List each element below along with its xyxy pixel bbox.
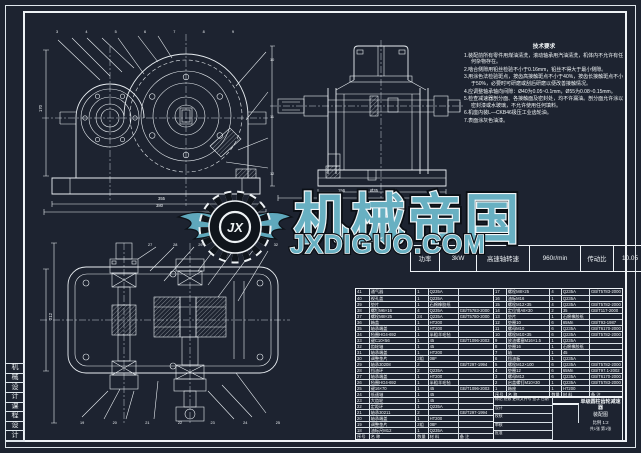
balloon-number: 7 — [173, 30, 175, 34]
balloon-number: 9 — [232, 30, 234, 34]
parts-list-table-left: 41通气器1Q235A40视孔盖1Q235A39垫片1石棉橡胶纸38螺钉M6×1… — [355, 288, 494, 440]
parts-list-table-right: 17螺栓M8×254Q235AGB/T5783-200016油标M161Q235… — [493, 288, 623, 398]
balloon-number: 5 — [115, 30, 117, 34]
signature-row: 标记 处数 更改文件号 签字 日期 — [494, 397, 552, 406]
winged-gear-logo-icon: JX — [176, 183, 294, 271]
balloon-number: 12 — [270, 172, 274, 176]
technical-note-line: 2.啮合侧隙用铅丝检验不小于0.16mm，铅丝不得大于最小侧隙。 — [464, 67, 624, 74]
balloon-number: 10 — [270, 58, 274, 62]
side-strip-char: 设 — [6, 383, 24, 393]
balloon-callouts-top-bottom: 19202122232425 — [80, 421, 280, 425]
dimension-label: 170 — [38, 105, 43, 112]
dimension-label: 355 — [158, 196, 165, 201]
dimension-label: 380 — [156, 203, 163, 208]
balloon-number: 23 — [211, 421, 215, 425]
binding-edge-label: 机械设计课程设计 — [5, 363, 25, 442]
technical-note-line: 7.表面涂灰色油漆。 — [464, 118, 624, 125]
balloon-number: 4 — [85, 30, 87, 34]
signature-row: 批准 — [494, 431, 552, 440]
balloon-number: 24 — [243, 421, 247, 425]
technical-notes-title: 技术要求 — [464, 44, 624, 51]
title-block-signature-rows: 标记 处数 更改文件号 签字 日期设计校核审核批准 — [494, 397, 553, 440]
technical-note-line: 1.装配前所有零件用煤油清洗，滚动轴承用汽油清洗，机体内不允许有任何杂物存在。 — [464, 53, 624, 66]
balloon-number: 27 — [148, 243, 152, 247]
parameter-cell: 10.05 — [614, 246, 641, 271]
balloon-number: 8 — [203, 30, 205, 34]
parameter-cell: 传动比 — [581, 246, 614, 271]
dimension-label: 212 — [48, 313, 53, 320]
technical-note-line: 5.检查减速器剖分面、各接触面及密封处，均不许漏油。剖分面允许涂以密封漆或水玻璃… — [464, 96, 624, 109]
balloon-number: 3 — [56, 30, 58, 34]
watermark: JX 机械帝国 机械帝国 机械帝国 JXDIGUO.COM JXDIGUO.CO… — [176, 183, 576, 273]
balloon-callouts-front-top: 3456789 — [56, 30, 234, 34]
technical-notes-list: 1.装配前所有零件用煤油清洗，滚动轴承用汽油清洗，机体内不允许有任何杂物存在。2… — [464, 53, 624, 125]
logo-monogram: JX — [227, 220, 244, 235]
table-cell: 备 注 — [459, 433, 493, 439]
signature-row: 审核 — [494, 423, 552, 432]
balloon-number: 19 — [80, 421, 84, 425]
title-block-name-area: 单级圆柱齿轮减速器 装配图 比例 1:2 共1张 第1张 — [579, 397, 622, 440]
technical-note-line: 3.用涂色法检验斑点，按齿高接触斑点不小于40%，按齿长接触斑点不小于50%，必… — [464, 74, 624, 87]
table-cell: 材 料 — [429, 433, 459, 439]
balloon-number: 11 — [270, 115, 274, 119]
table-cell: 名 称 — [370, 433, 417, 439]
drawing-subtitle: 装配图 — [579, 411, 622, 418]
balloon-number: 22 — [178, 421, 182, 425]
cad-drawing-canvas: 机械设计课程设计 — [0, 0, 641, 453]
side-strip-char: 程 — [6, 412, 24, 422]
side-strip-char: 机 — [6, 364, 24, 374]
title-block: 标记 处数 更改文件号 签字 日期设计校核审核批准 单级圆柱齿轮减速器 装配图 … — [493, 396, 623, 441]
side-strip-char: 计 — [6, 393, 24, 403]
technical-notes: 技术要求 1.装配前所有零件用煤油清洗，滚动轴承用汽油清洗，机体内不允许有任何杂… — [464, 44, 624, 126]
balloon-number: 25 — [276, 421, 280, 425]
balloon-number: 20 — [113, 421, 117, 425]
table-cell: 数量 — [416, 433, 428, 439]
balloon-number: 6 — [144, 30, 146, 34]
site-text: JXDIGUO.COM — [290, 229, 486, 260]
title-block-material-box — [553, 403, 579, 423]
balloon-number: 21 — [145, 421, 149, 425]
side-strip-char: 设 — [6, 422, 24, 432]
signature-row: 校核 — [494, 414, 552, 423]
table-cell: 序号 — [356, 433, 370, 439]
signature-row: 设计 — [494, 406, 552, 415]
table-row: 序号名 称数量材 料备 注 — [356, 433, 493, 439]
side-strip-char: 计 — [6, 431, 24, 441]
sheet-count: 共1张 第1张 — [579, 426, 622, 432]
side-strip-char: 械 — [6, 374, 24, 384]
technical-note-line: 4.应调整轴承轴向间隙：Ø40为0.05~0.1mm，Ø55为0.08~0.15… — [464, 89, 624, 96]
drawing-title: 单级圆柱齿轮减速器 — [579, 397, 622, 411]
side-strip-char: 课 — [6, 403, 24, 413]
technical-note-line: 6.机座内装L—CKB46极压工业齿轮油。 — [464, 110, 624, 117]
balloon-callouts-front-right: 101112 — [270, 58, 274, 176]
